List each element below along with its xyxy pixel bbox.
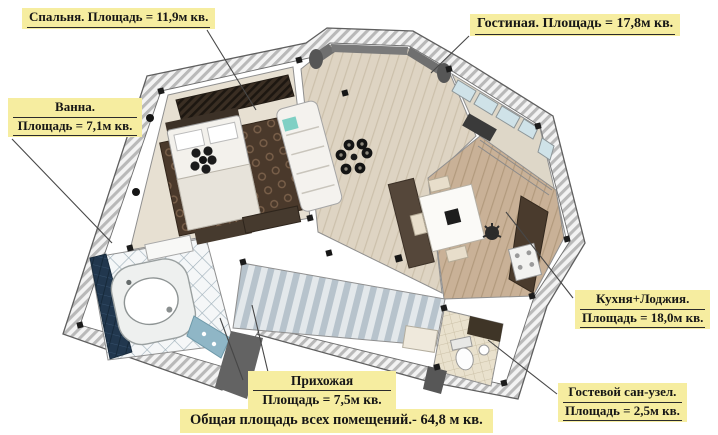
- leader-line-bath: [12, 139, 112, 243]
- guest-wc-name-text: Гостевой сан-узел.: [563, 384, 682, 403]
- kitchen-loggia-area-text: Площадь = 18,0м кв.: [580, 310, 705, 329]
- wc-sink: [479, 345, 489, 355]
- hallway-area-text: Площадь = 7,5м кв.: [253, 391, 391, 410]
- living-room-area-text: Гостиная. Площадь = 17,8м кв.: [475, 15, 675, 35]
- kitchen-loggia-area-label: Кухня+Лоджия. Площадь = 18,0м кв.: [575, 290, 710, 329]
- hallway-name-text: Прихожая: [253, 372, 391, 391]
- bathroom-name-text: Ванна.: [13, 99, 137, 118]
- guest-wc-area-label: Гостевой сан-узел. Площадь = 2,5м кв.: [558, 383, 687, 422]
- total-area-text: Общая площадь всех помещений.- 64,8 м кв…: [188, 411, 485, 431]
- hallway-area-label: Прихожая Площадь = 7,5м кв.: [248, 371, 396, 412]
- bathroom-area-text: Площадь = 7,1м кв.: [13, 118, 137, 137]
- bedroom-area-text: Спальня. Площадь = 11,9м кв.: [27, 9, 210, 28]
- floor-plan-canvas: Спальня. Площадь = 11,9м кв. Гостиная. П…: [0, 0, 718, 435]
- guest-wc-area-text: Площадь = 2,5м кв.: [563, 403, 682, 422]
- kitchen-loggia-name-text: Кухня+Лоджия.: [580, 291, 705, 310]
- living-room-area-label: Гостиная. Площадь = 17,8м кв.: [470, 14, 680, 36]
- floor-plan-drawing: [0, 0, 718, 435]
- bathroom-area-label: Ванна. Площадь = 7,1м кв.: [8, 98, 142, 137]
- hall-cabinet: [403, 326, 438, 353]
- bedroom-knob: [132, 188, 140, 196]
- total-area-label: Общая площадь всех помещений.- 64,8 м кв…: [180, 409, 493, 433]
- bedroom-knob: [146, 114, 154, 122]
- bedroom-area-label: Спальня. Площадь = 11,9м кв.: [22, 8, 215, 29]
